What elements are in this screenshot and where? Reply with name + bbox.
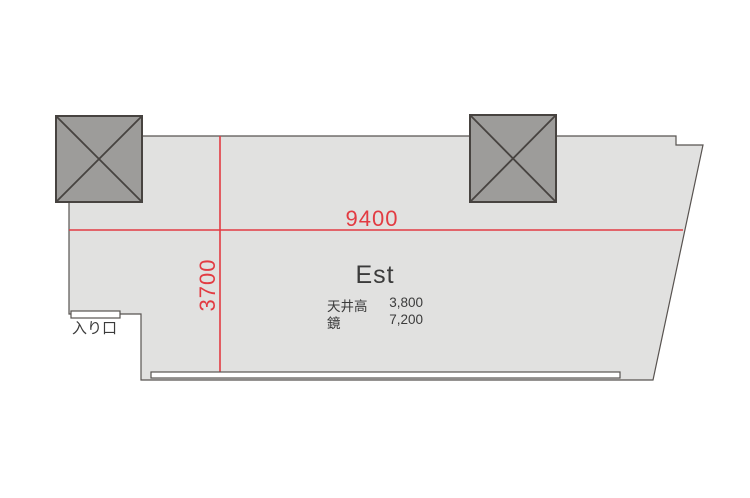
width-dimension-label: 9400 (336, 207, 408, 231)
entrance-label: 入り口 (72, 321, 117, 338)
pillar-symbol-left (56, 116, 142, 202)
room-name: Est (330, 262, 420, 290)
room-outline (69, 136, 703, 380)
floor-plan-canvas: 9400 3700 Est 天井高 3,800 鏡 7,200 入り口 (0, 0, 750, 498)
spec-label-mirror: 鏡 (327, 312, 378, 329)
spec-label-ceiling-height: 天井高 (327, 295, 378, 312)
entrance-door (71, 311, 120, 318)
mirror-strip (151, 372, 620, 378)
depth-dimension-label: 3700 (196, 249, 218, 321)
pillar-symbol-right (470, 115, 556, 202)
spec-value-ceiling-height: 3,800 (378, 295, 423, 312)
floor-plan-drawing (0, 0, 750, 498)
spec-value-mirror: 7,200 (378, 312, 423, 329)
room-specs: 天井高 3,800 鏡 7,200 (327, 295, 423, 328)
